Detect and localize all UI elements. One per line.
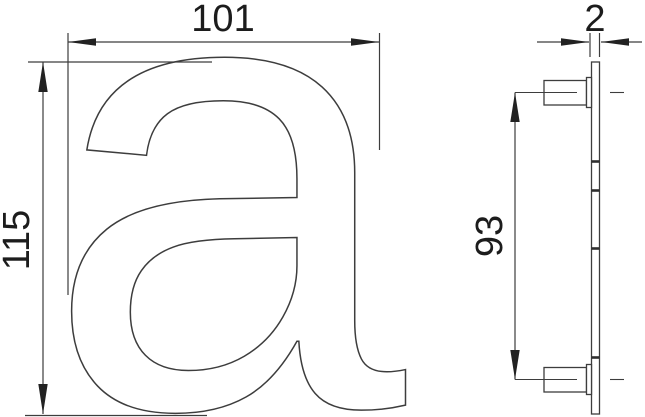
- width-dimension-label: 101: [191, 0, 254, 40]
- thickness-dimension-label: 2: [584, 0, 605, 40]
- pin-spacing-arrowhead-bottom-icon: [510, 350, 519, 380]
- side-view: 93 2: [469, 0, 642, 414]
- pin-flange: [587, 365, 592, 395]
- pin-spacing-dimension-label: 93: [469, 215, 511, 257]
- drawing-svg: a 101 115: [0, 0, 645, 417]
- pin-spacing-arrowhead-top-icon: [510, 93, 519, 123]
- front-view: a 101 115: [0, 0, 410, 417]
- height-dimension-label: 115: [0, 210, 38, 271]
- technical-drawing-canvas: a 101 115: [0, 0, 645, 417]
- pin-flange: [587, 78, 592, 108]
- plate-profile: [592, 62, 600, 414]
